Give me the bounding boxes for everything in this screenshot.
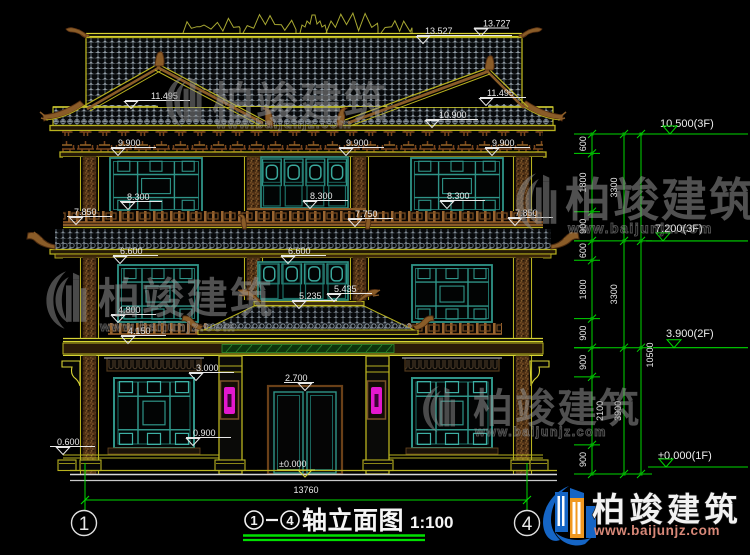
svg-text:600: 600	[578, 136, 588, 151]
svg-text:1: 1	[79, 514, 90, 535]
svg-text:3300: 3300	[609, 284, 619, 304]
svg-text:6.600: 6.600	[120, 246, 143, 256]
svg-text:3.900(2F): 3.900(2F)	[666, 328, 714, 340]
svg-text:11.495: 11.495	[487, 88, 514, 98]
svg-text:轴立面图: 轴立面图	[302, 506, 404, 535]
svg-text:13.527: 13.527	[425, 26, 453, 36]
svg-text:0.900: 0.900	[193, 428, 216, 438]
svg-text:1: 1	[250, 513, 257, 528]
svg-text:5.235: 5.235	[299, 291, 322, 301]
svg-text:9.900: 9.900	[118, 138, 141, 148]
svg-text:11.495: 11.495	[151, 91, 178, 101]
svg-text:www.baijunjz.com: www.baijunjz.com	[567, 220, 713, 236]
svg-text:5.435: 5.435	[334, 284, 357, 294]
svg-text:柏竣建筑: 柏竣建筑	[565, 174, 750, 226]
svg-text:1800: 1800	[578, 279, 588, 299]
svg-text:900: 900	[578, 452, 588, 467]
svg-text:www.baijunjz.com: www.baijunjz.com	[99, 319, 236, 334]
svg-text:柏竣建筑: 柏竣建筑	[98, 275, 274, 322]
svg-text:8.300: 8.300	[127, 192, 150, 202]
svg-text:±0.000: ±0.000	[279, 459, 306, 469]
svg-text:6.600: 6.600	[288, 246, 311, 256]
svg-text:4: 4	[286, 513, 294, 528]
svg-text:900: 900	[578, 326, 588, 341]
svg-text:www.baijunjz.com: www.baijunjz.com	[593, 523, 720, 538]
svg-text:900: 900	[578, 355, 588, 370]
svg-text:0.600: 0.600	[57, 437, 80, 447]
svg-text:2.700: 2.700	[285, 373, 308, 383]
svg-text:10.500(3F): 10.500(3F)	[660, 118, 714, 130]
svg-text:13760: 13760	[293, 485, 318, 495]
svg-text:10.900: 10.900	[439, 110, 467, 120]
svg-text:8.300: 8.300	[310, 191, 333, 201]
svg-text:1:100: 1:100	[410, 513, 453, 532]
svg-text:10500: 10500	[645, 342, 655, 367]
svg-text:8.300: 8.300	[447, 191, 470, 201]
svg-text:4: 4	[522, 514, 533, 535]
svg-text:9.900: 9.900	[492, 138, 515, 148]
svg-text:7.850: 7.850	[74, 207, 97, 217]
svg-text:9.900: 9.900	[346, 138, 369, 148]
svg-text:13.727: 13.727	[483, 19, 511, 29]
svg-text:www.baijunjz.com: www.baijunjz.com	[215, 116, 352, 131]
svg-text:±0.000(1F): ±0.000(1F)	[658, 450, 712, 462]
svg-text:www.baijunjz.com: www.baijunjz.com	[474, 425, 607, 439]
svg-text:3.000: 3.000	[196, 363, 219, 373]
svg-text:7.750: 7.750	[355, 209, 378, 219]
svg-text:600: 600	[578, 243, 588, 258]
